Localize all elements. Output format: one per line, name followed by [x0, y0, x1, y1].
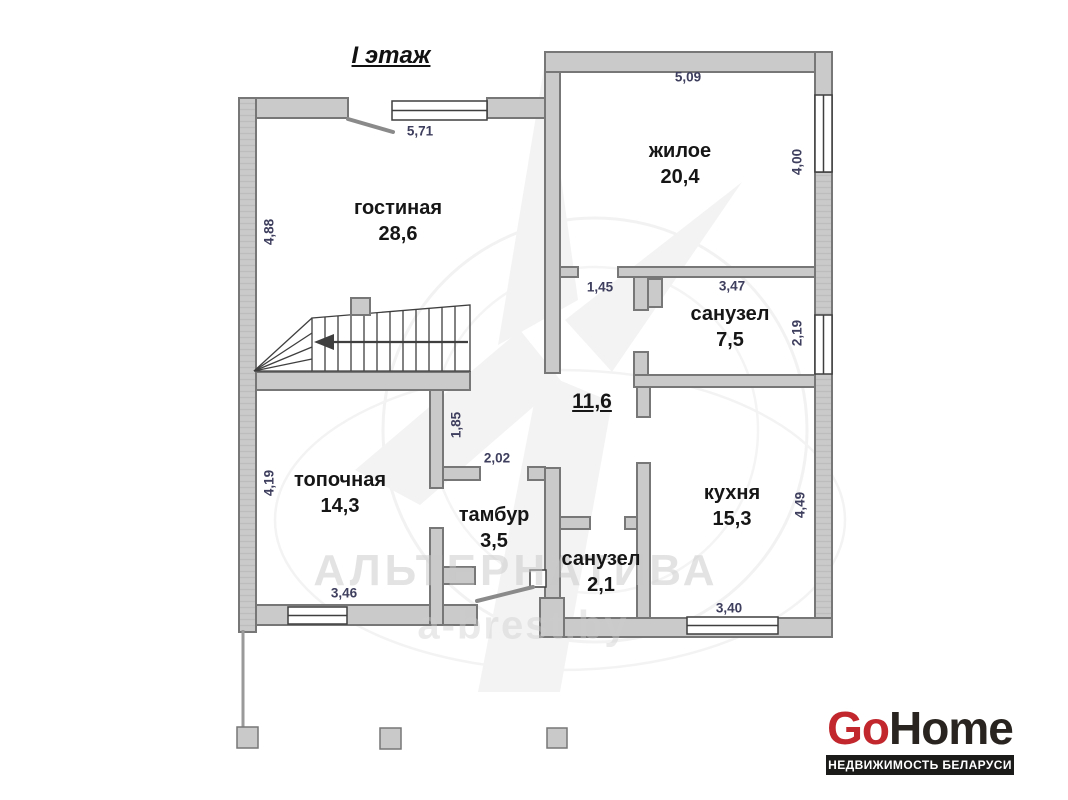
room-area: 28,6: [354, 221, 442, 247]
stair-arrow-head: [314, 334, 334, 350]
room-name: тамбур: [459, 502, 530, 528]
stair-winder-line: [254, 347, 312, 371]
hall-area-label: 11,6: [572, 390, 612, 414]
wall-segment: [443, 467, 480, 480]
door-leaf: [348, 119, 393, 132]
dimension-label: 2,19: [790, 320, 805, 346]
dimension-label: 4,19: [262, 470, 277, 496]
wall-hatch-left: [239, 98, 256, 632]
room-label-zhiloe: жилое 20,4: [649, 138, 711, 190]
room-label-topochnaya: топочная 14,3: [294, 467, 386, 519]
wall-segment: [634, 277, 648, 310]
room-area: 2,1: [562, 572, 641, 598]
room-name: топочная: [294, 467, 386, 493]
dimension-label: 1,45: [587, 280, 613, 295]
room-label-kuhnya: кухня 15,3: [704, 480, 760, 532]
room-area: 14,3: [294, 493, 386, 519]
porch-post: [380, 728, 401, 749]
porch-post: [547, 728, 567, 748]
porch-post: [237, 727, 258, 748]
dimension-label: 3,46: [331, 586, 357, 601]
dimension-label: 4,88: [262, 219, 277, 245]
room-label-sanuzel-1: санузел 7,5: [691, 301, 770, 353]
gohome-logo-text: GoHome: [826, 704, 1014, 752]
room-name: гостиная: [354, 195, 442, 221]
wall-hatch-right: [815, 172, 832, 618]
stair-newel-post: [351, 298, 370, 315]
wall-segment: [239, 372, 470, 390]
wall-segment: [560, 267, 578, 277]
logo-go-text: Go: [827, 702, 889, 754]
logo-tagline: НЕДВИЖИМОСТЬ БЕЛАРУСИ: [826, 755, 1014, 775]
logo-home-text: Home: [889, 702, 1013, 754]
wall-segment: [618, 267, 815, 277]
wall-segment: [528, 467, 545, 480]
wall-segment: [560, 517, 590, 529]
dimension-label: 4,49: [793, 492, 808, 518]
wall-segment: [634, 375, 815, 387]
gohome-logo: GoHome НЕДВИЖИМОСТЬ БЕЛАРУСИ: [826, 704, 1014, 775]
dimension-label: 3,47: [719, 279, 745, 294]
dimension-label: 5,71: [407, 124, 433, 139]
room-area: 15,3: [704, 506, 760, 532]
page-title: I этаж: [352, 42, 431, 70]
wall-segment: [637, 387, 650, 417]
stair-winder-line: [254, 318, 312, 371]
dimension-label: 4,00: [790, 149, 805, 175]
room-label-sanuzel-2: санузел 2,1: [562, 546, 641, 598]
floor-plan-svg: [0, 0, 1068, 800]
room-area: 20,4: [649, 164, 711, 190]
floor-plan-page: АЛЬТЕРНАТИВА a-brest.by: [0, 0, 1068, 800]
room-area: 3,5: [459, 528, 530, 554]
dimension-label: 1,85: [449, 412, 464, 438]
dimension-label: 2,02: [484, 451, 510, 466]
wall-segment: [625, 517, 637, 529]
wall-segment: [545, 72, 560, 373]
wall-segment: [430, 390, 443, 488]
room-name: жилое: [649, 138, 711, 164]
dimension-label: 5,09: [675, 70, 701, 85]
room-label-gostinaya: гостиная 28,6: [354, 195, 442, 247]
door-leaf-open: [648, 279, 662, 307]
dimension-label: 3,40: [716, 601, 742, 616]
room-area: 7,5: [691, 327, 770, 353]
room-name: санузел: [562, 546, 641, 572]
watermark-site: a-brest.by: [417, 604, 628, 649]
room-name: санузел: [691, 301, 770, 327]
room-name: кухня: [704, 480, 760, 506]
room-label-tambur: тамбур 3,5: [459, 502, 530, 554]
